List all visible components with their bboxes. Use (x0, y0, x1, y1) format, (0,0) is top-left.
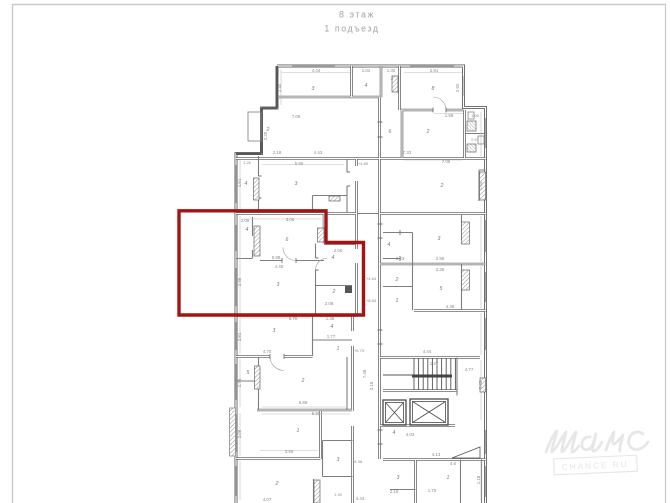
svg-text:6: 6 (286, 237, 289, 243)
svg-text:1.38: 1.38 (326, 316, 335, 321)
svg-text:1.70: 1.70 (428, 488, 437, 493)
svg-text:8 этаж: 8 этаж (339, 10, 375, 20)
svg-text:7.08: 7.08 (442, 159, 451, 164)
svg-text:5.70: 5.70 (289, 316, 298, 321)
svg-text:1.98: 1.98 (445, 113, 454, 118)
svg-text:2.78: 2.78 (237, 378, 242, 387)
svg-text:1: 1 (447, 475, 450, 481)
svg-text:1: 1 (396, 298, 399, 304)
svg-text:4.03: 4.03 (406, 432, 415, 437)
svg-text:1: 1 (391, 76, 394, 82)
svg-text:1 подъезд: 1 подъезд (324, 24, 379, 34)
svg-text:1: 1 (337, 346, 340, 352)
svg-text:3: 3 (438, 236, 441, 242)
svg-text:+4.80: +4.80 (358, 161, 369, 166)
svg-text:1.47: 1.47 (430, 361, 439, 366)
svg-text:3: 3 (273, 328, 276, 334)
svg-text:2.81: 2.81 (237, 332, 242, 341)
svg-text:5: 5 (247, 370, 250, 376)
svg-text:5.90: 5.90 (312, 411, 321, 416)
svg-text:5: 5 (440, 286, 443, 292)
svg-text:5.86: 5.86 (295, 161, 304, 166)
svg-text:7.48: 7.48 (362, 369, 367, 378)
svg-text:4.13: 4.13 (432, 452, 441, 457)
svg-text:1.30: 1.30 (387, 68, 396, 73)
svg-text:4.44: 4.44 (356, 496, 365, 501)
svg-text:+4.64: +4.64 (366, 276, 377, 281)
svg-text:4.70: 4.70 (263, 349, 272, 354)
svg-text:2: 2 (301, 378, 305, 384)
svg-text:2.36: 2.36 (436, 267, 445, 272)
svg-text:3: 3 (295, 181, 298, 187)
svg-text:4: 4 (245, 181, 248, 187)
svg-text:1: 1 (297, 428, 300, 434)
svg-text:2: 2 (266, 127, 270, 133)
svg-text:3.96: 3.96 (285, 449, 294, 454)
svg-text:1.02: 1.02 (362, 68, 371, 73)
svg-text:+8.84: +8.84 (366, 298, 377, 303)
svg-text:2: 2 (395, 277, 399, 283)
svg-text:2: 2 (275, 481, 279, 487)
svg-text:6: 6 (389, 129, 392, 135)
svg-text:4: 4 (332, 255, 335, 261)
svg-text:2: 2 (332, 289, 336, 295)
svg-text:1.26: 1.26 (243, 161, 250, 165)
svg-text:CHANCE.RU: CHANCE.RU (562, 459, 629, 472)
svg-text:2.23: 2.23 (396, 256, 405, 261)
svg-text:4.43: 4.43 (314, 150, 323, 155)
svg-text:1.44: 1.44 (478, 181, 483, 190)
svg-text:3: 3 (397, 475, 400, 481)
svg-text:1.39: 1.39 (334, 493, 341, 497)
svg-text:4.44: 4.44 (312, 68, 321, 73)
svg-text:4: 4 (388, 242, 391, 248)
svg-text:+8.38: +8.38 (352, 459, 363, 464)
svg-text:2.19: 2.19 (390, 489, 399, 494)
svg-text:5.48: 5.48 (478, 380, 483, 389)
svg-text:3.06: 3.06 (286, 217, 295, 222)
svg-text:8: 8 (432, 86, 435, 92)
svg-text:3: 3 (312, 86, 315, 92)
svg-text:5.88: 5.88 (299, 400, 308, 405)
svg-text:2.06: 2.06 (241, 218, 250, 223)
svg-text:1.06: 1.06 (471, 114, 478, 118)
svg-text:2.91: 2.91 (430, 68, 439, 73)
svg-text:2.18: 2.18 (273, 150, 282, 155)
svg-text:2.06: 2.06 (334, 248, 343, 253)
svg-text:7.06: 7.06 (292, 114, 301, 119)
svg-text:+5.79: +5.79 (354, 348, 365, 353)
svg-text:0.97: 0.97 (471, 138, 478, 142)
svg-text:4: 4 (246, 227, 249, 233)
svg-text:1.77: 1.77 (327, 334, 336, 339)
svg-text:2.92: 2.92 (455, 83, 460, 92)
svg-text:4.77: 4.77 (465, 367, 474, 372)
svg-text:2.96: 2.96 (436, 256, 445, 261)
svg-text:3: 3 (277, 282, 280, 288)
svg-text:4.07: 4.07 (263, 497, 272, 502)
svg-text:2: 2 (426, 129, 430, 135)
svg-text:4: 4 (365, 83, 368, 89)
svg-text:4.45: 4.45 (275, 264, 284, 269)
svg-text:2.08: 2.08 (325, 301, 334, 306)
svg-text:1.61: 1.61 (237, 178, 242, 187)
svg-text:1.18: 1.18 (476, 475, 481, 484)
svg-text:2.98: 2.98 (237, 277, 242, 286)
svg-text:0.88: 0.88 (272, 255, 281, 260)
svg-text:3: 3 (337, 457, 340, 463)
svg-text:2: 2 (440, 183, 444, 189)
svg-text:3.18: 3.18 (369, 381, 374, 390)
svg-text:4.44: 4.44 (423, 349, 432, 354)
svg-text:7.33: 7.33 (403, 150, 412, 155)
svg-text:4.6: 4.6 (450, 461, 457, 466)
svg-text:2.40: 2.40 (277, 83, 282, 92)
svg-text:4: 4 (393, 430, 396, 436)
svg-text:2.08: 2.08 (237, 429, 242, 438)
svg-text:4: 4 (331, 324, 334, 330)
svg-text:4.38: 4.38 (446, 304, 455, 309)
